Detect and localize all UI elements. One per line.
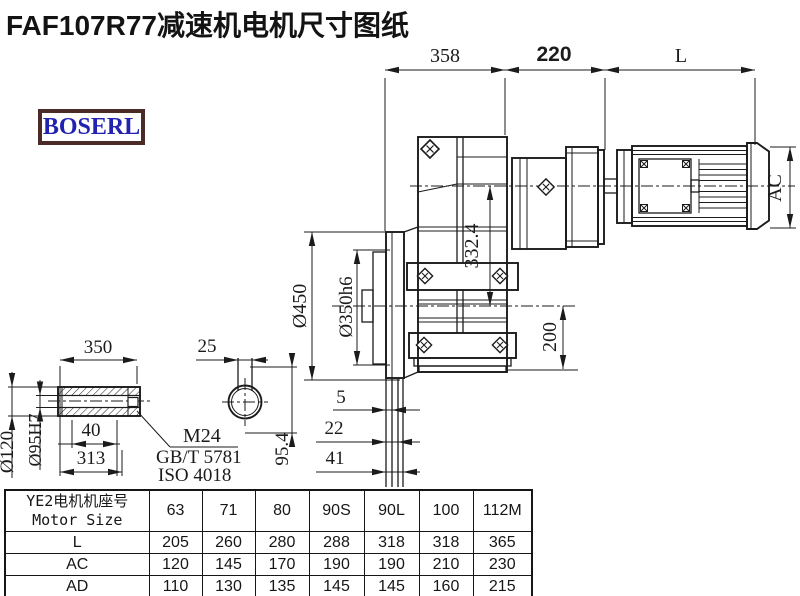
cell: 170	[255, 554, 309, 576]
dim-L: L	[675, 45, 687, 67]
dim-95h7: Ø95H7	[25, 414, 45, 467]
bolt-mark-icon	[683, 161, 690, 168]
dim-41: 41	[326, 448, 345, 469]
hollow-shaft-detail: 350 Ø120 Ø95H7 40 313 M24 GB/T 5781 ISO …	[0, 337, 242, 486]
dimension-axis: 332.4 200	[461, 186, 566, 369]
oil-plug-icon	[492, 337, 507, 352]
table-row-L: L 205 260 280 288 318 318 365	[5, 532, 532, 554]
dimension-shaft-steps: 5 22 41	[316, 378, 420, 487]
header-en: Motor Size	[6, 511, 149, 530]
dim-AC: AC	[764, 174, 786, 202]
dim-350: 350	[84, 337, 113, 358]
dim-220: 220	[536, 43, 571, 66]
size-col: 90S	[309, 490, 364, 532]
cell: 288	[309, 532, 364, 554]
cell: 130	[202, 576, 255, 596]
breather-plug-icon	[538, 179, 554, 195]
cell: 280	[255, 532, 309, 554]
boserl-logo-text: BOSERL	[43, 115, 140, 139]
size-col: 112M	[473, 490, 532, 532]
cad-drawing: 358 220 L	[0, 0, 800, 490]
bolt-mark-icon	[641, 205, 648, 212]
size-col: 100	[419, 490, 473, 532]
motor-size-table: YE2电机机座号 Motor Size 63 71 80 90S 90L 100…	[4, 489, 533, 596]
oil-plug-icon	[417, 268, 432, 283]
size-col: 71	[202, 490, 255, 532]
cell: 260	[202, 532, 255, 554]
dim-120: Ø120	[0, 431, 18, 473]
cell: 318	[364, 532, 419, 554]
oil-plug-icon	[421, 140, 439, 158]
cell: 120	[149, 554, 202, 576]
cell: 190	[309, 554, 364, 576]
cell: 160	[419, 576, 473, 596]
size-col: 63	[149, 490, 202, 532]
drawing-page: { "title": "FAF107R77减速机电机尺寸图纸", "logo":…	[0, 0, 800, 596]
cell: 205	[149, 532, 202, 554]
adapter	[512, 147, 617, 249]
callout-m24: M24	[183, 425, 221, 447]
row-label: AC	[5, 554, 149, 576]
page-title: FAF107R77减速机电机尺寸图纸	[6, 4, 409, 44]
cell: 110	[149, 576, 202, 596]
table-header-label: YE2电机机座号 Motor Size	[5, 490, 149, 532]
row-label: AD	[5, 576, 149, 596]
cell: 145	[202, 554, 255, 576]
table-row-AC: AC 120 145 170 190 190 210 230	[5, 554, 532, 576]
dim-40: 40	[82, 420, 101, 441]
table-header-row: YE2电机机座号 Motor Size 63 71 80 90S 90L 100…	[5, 490, 532, 532]
row-label: L	[5, 532, 149, 554]
header-cn: YE2电机机座号	[6, 492, 149, 511]
cell: 210	[419, 554, 473, 576]
cell: 190	[364, 554, 419, 576]
cell: 230	[473, 554, 532, 576]
callout-iso4018: ISO 4018	[158, 465, 231, 486]
cell: 365	[473, 532, 532, 554]
dim-313: 313	[77, 448, 106, 469]
dim-25: 25	[198, 336, 217, 357]
cell: 215	[473, 576, 532, 596]
bolt-mark-icon	[641, 161, 648, 168]
dim-332-4: 332.4	[461, 224, 483, 269]
dim-358: 358	[430, 45, 460, 67]
cell: 135	[255, 576, 309, 596]
size-col: 90L	[364, 490, 419, 532]
dim-22: 22	[325, 418, 344, 439]
size-col: 80	[255, 490, 309, 532]
dim-200: 200	[539, 322, 561, 352]
dim-95-4: 95.4	[272, 432, 293, 466]
dim-350h6: Ø350h6	[336, 276, 357, 337]
cell: 145	[364, 576, 419, 596]
cell: 318	[419, 532, 473, 554]
cell: 145	[309, 576, 364, 596]
bolt-mark-icon	[683, 205, 690, 212]
dim-450: Ø450	[289, 284, 311, 328]
table-row-AD: AD 110 130 135 145 145 160 215	[5, 576, 532, 596]
oil-plug-icon	[492, 268, 507, 283]
boserl-logo: BOSERL	[38, 109, 145, 145]
dim-5: 5	[336, 387, 346, 408]
